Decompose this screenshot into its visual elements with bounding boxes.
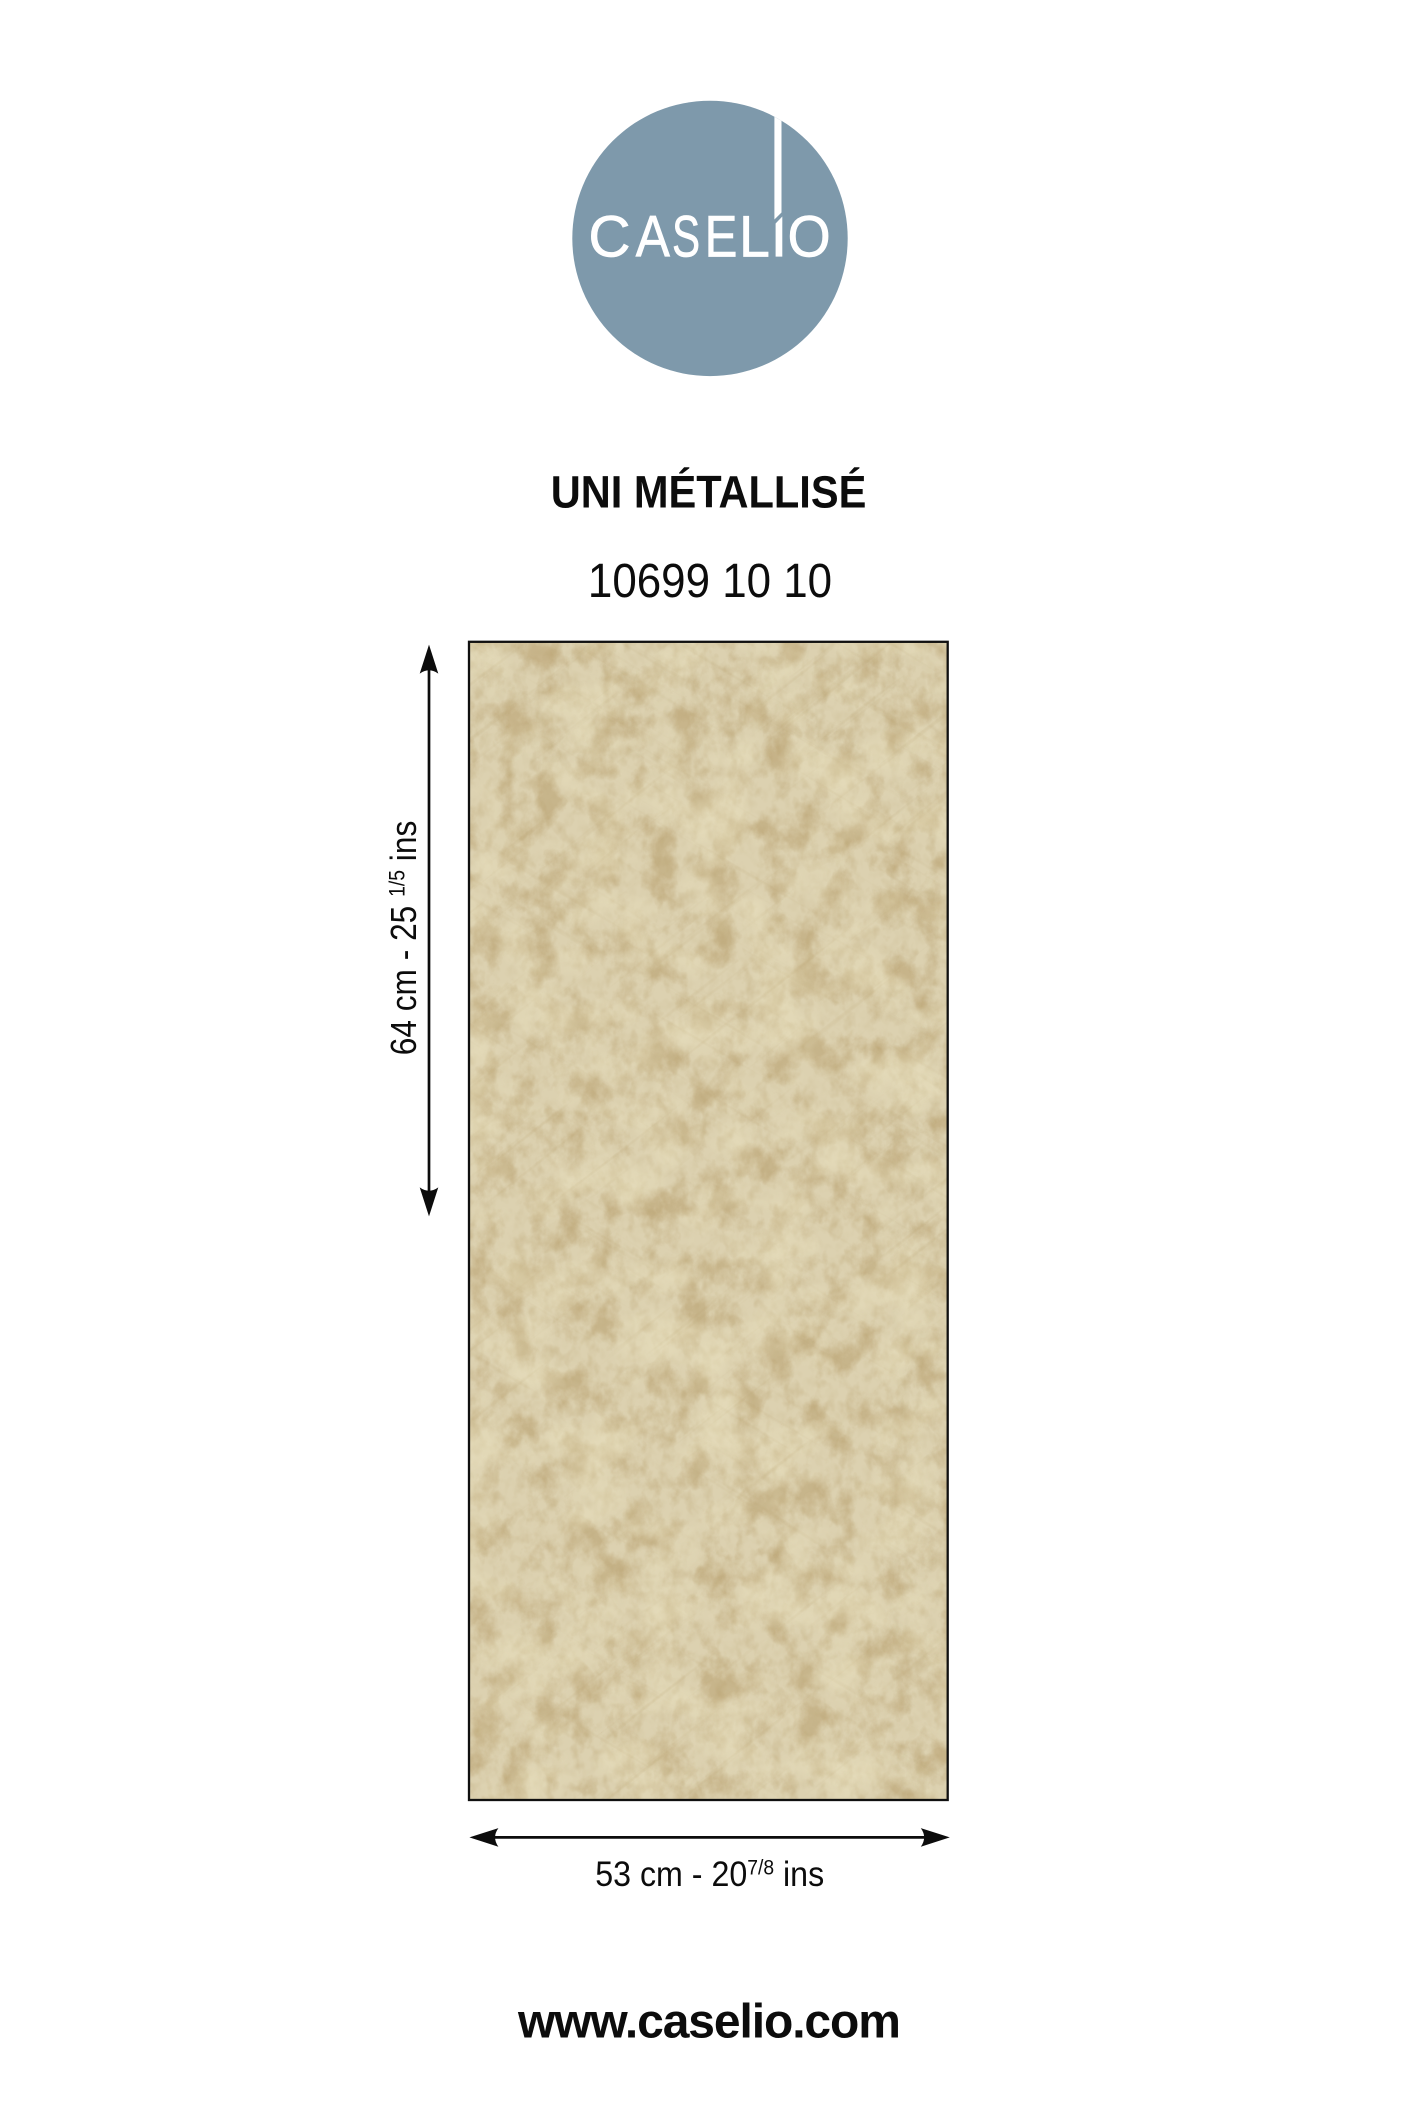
svg-text:64 cm - 25 1/5 ins: 64 cm - 25 1/5 ins: [384, 821, 424, 1056]
svg-text:UNI MÉTALLISÉ: UNI MÉTALLISÉ: [551, 468, 867, 518]
svg-text:A: A: [636, 204, 671, 270]
svg-text:E: E: [705, 205, 738, 270]
svg-text:10699 10 10: 10699 10 10: [588, 553, 832, 607]
svg-text:L: L: [739, 204, 770, 270]
svg-text:www.caselio.com: www.caselio.com: [517, 1996, 900, 2049]
svg-text:C: C: [588, 205, 630, 270]
svg-text:S: S: [672, 204, 700, 269]
svg-text:53 cm - 207/8 ins: 53 cm - 207/8 ins: [595, 1856, 824, 1895]
svg-text:O: O: [787, 204, 830, 270]
